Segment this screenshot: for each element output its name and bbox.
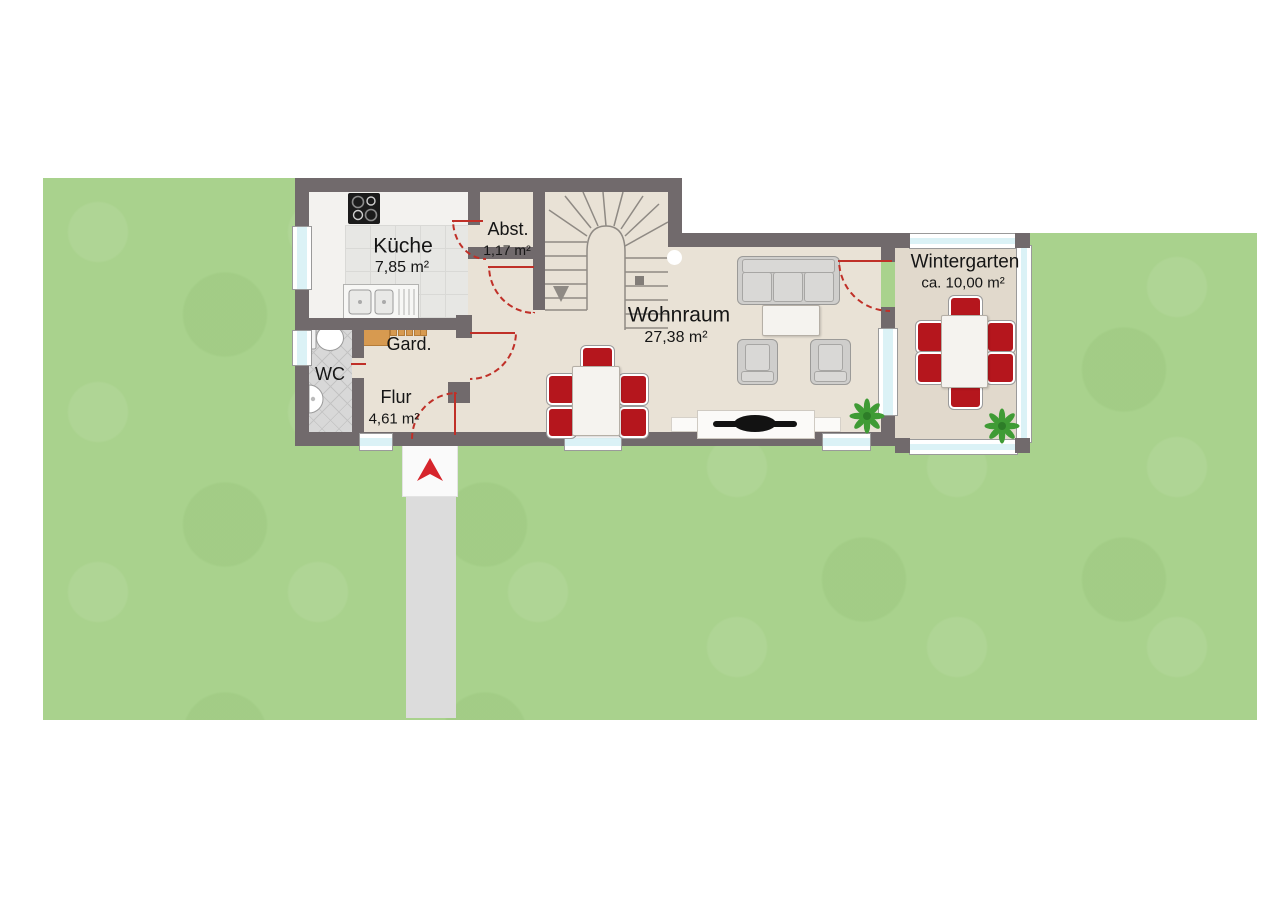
plant-icon (984, 408, 1020, 444)
room-label-gard: Gard. (386, 335, 431, 353)
plant-icon (849, 398, 885, 434)
room-label-wc: WC (315, 365, 345, 383)
room-label-abst: Abst. (487, 220, 528, 238)
armchair-icon (810, 339, 851, 385)
room-label-flur: Flur (381, 388, 412, 406)
sideboard-shelf (813, 417, 841, 432)
kitchen-counter-left (309, 225, 345, 318)
room-label-wintergarten: Wintergarten (911, 253, 1020, 272)
floor-plan-canvas: Küche 7,85 m² Abst. 1,17 m² Wohnraum 27,… (0, 0, 1280, 905)
exterior-wall-step-horizontal (668, 233, 895, 247)
window (359, 433, 393, 451)
room-area-abst: 1,17 m² (483, 243, 530, 257)
wintergarten-glass-top (909, 233, 1018, 249)
kitchen-counter-top (309, 192, 468, 225)
sofa-icon (737, 256, 840, 305)
entrance-arrow-icon (415, 455, 445, 483)
dining-chair (986, 321, 1015, 353)
interior-wall-wc (352, 378, 364, 432)
sink-icon (344, 285, 418, 319)
downpipe-marker (667, 250, 682, 265)
tv-icon (734, 415, 776, 432)
dining-chair (619, 407, 648, 438)
room-area-wohnraum: 27,38 m² (644, 330, 707, 346)
dining-table (941, 315, 988, 388)
cooktop-icon (348, 193, 380, 224)
stair-direction-arrow (553, 286, 569, 302)
entrance-doormat (403, 446, 457, 496)
armchair-icon (737, 339, 778, 385)
sideboard-shelf (671, 417, 699, 432)
window (822, 433, 871, 451)
wintergarten-post (895, 233, 910, 248)
dining-table (572, 366, 620, 436)
kitchen-sink-unit (343, 284, 419, 320)
exterior-wall-top (295, 178, 682, 192)
room-area-wintergarten: ca. 10,00 m² (921, 276, 1004, 291)
coffee-table (762, 305, 820, 336)
room-label-kueche: Küche (373, 236, 433, 257)
wintergarten-post (1015, 233, 1030, 248)
interior-wall-kueche-bottom (295, 318, 458, 330)
wc-sink-icon (308, 384, 334, 414)
window (292, 226, 312, 290)
exterior-wall-left (295, 178, 309, 446)
wintergarten-post (895, 438, 910, 453)
dining-chair (986, 352, 1015, 384)
room-area-flur: 4,61 m² (369, 412, 420, 427)
room-area-kueche: 7,85 m² (375, 260, 429, 276)
interior-wall-wc (352, 330, 364, 358)
wc-door-leaf (351, 363, 366, 365)
dining-chair (619, 374, 648, 405)
window (292, 330, 312, 366)
room-label-wohnraum: Wohnraum (628, 305, 730, 326)
entrance-path (406, 494, 456, 718)
